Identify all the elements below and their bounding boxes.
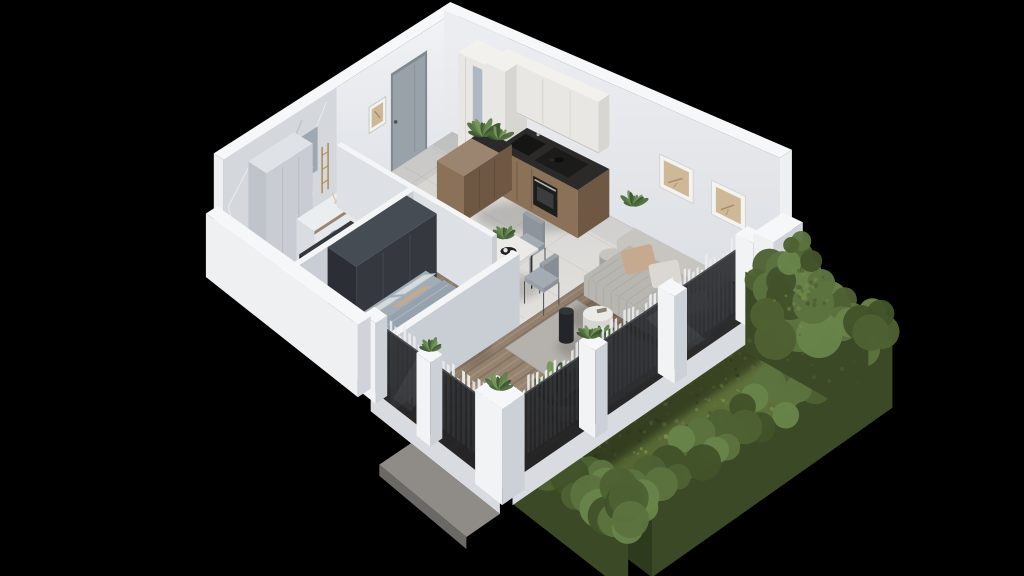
floorplan-3d-render bbox=[0, 0, 1024, 576]
floorplan-stage bbox=[0, 0, 1024, 576]
